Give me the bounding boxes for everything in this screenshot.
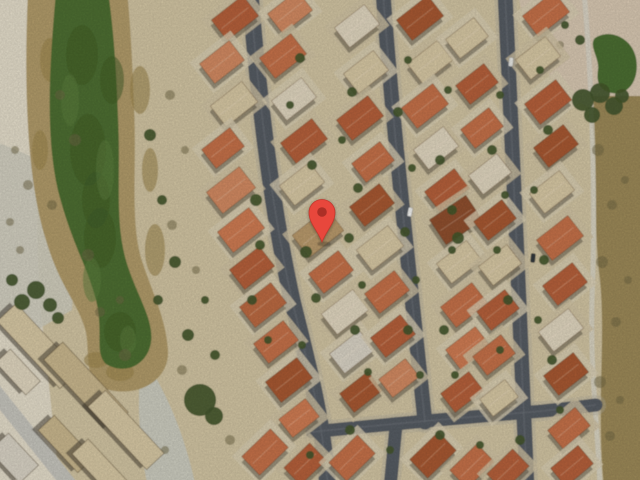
satellite-map[interactable]	[0, 0, 640, 480]
location-pin[interactable]	[304, 192, 340, 246]
pin-body	[309, 200, 335, 243]
pin-inner-dot	[317, 207, 327, 217]
